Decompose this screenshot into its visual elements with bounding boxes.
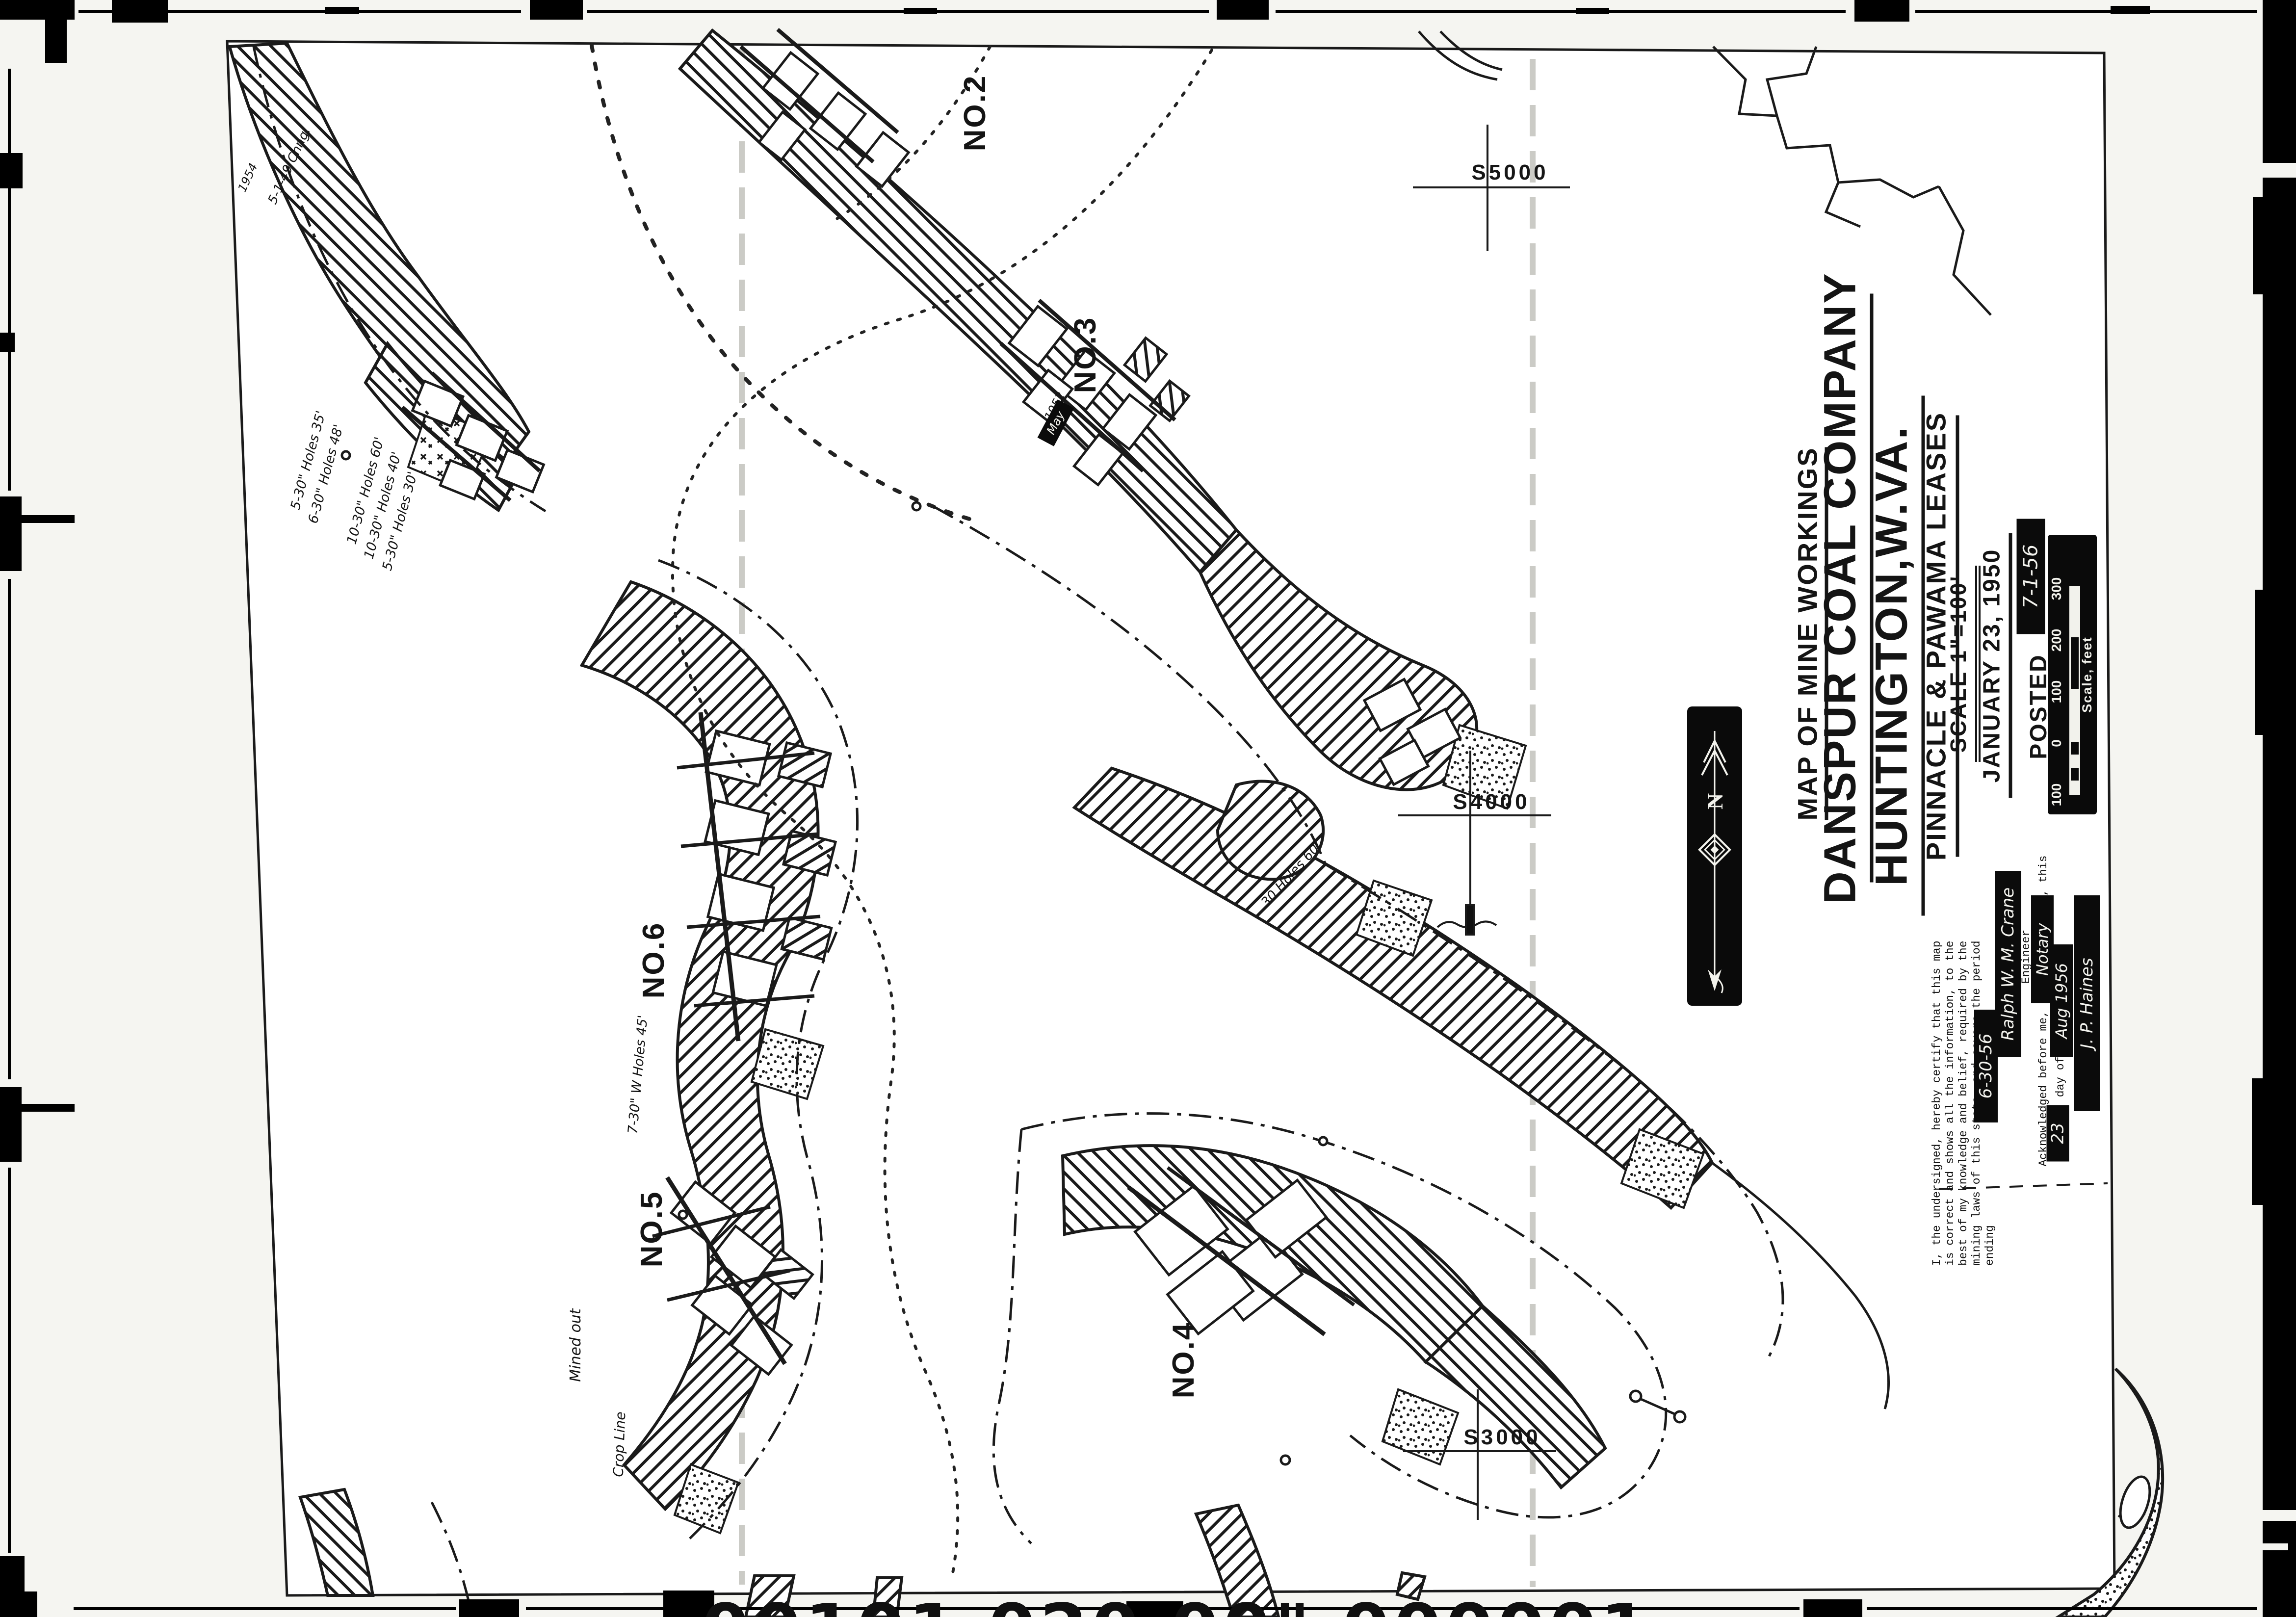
grid-label-s3000: S3000 xyxy=(1448,1427,1556,1448)
posted-date-handwritten: 7-1-56 xyxy=(2017,519,2045,634)
cert-line-1: I, the undersigned, hereby certify that … xyxy=(1931,873,1944,1266)
location-title: HUNTINGTON,W.VA. xyxy=(1865,396,1925,916)
label-no3: NO.3 xyxy=(1070,303,1100,406)
label-no5: NO.5 xyxy=(637,1177,666,1280)
annotation-mined-out: Mined out xyxy=(568,1281,583,1409)
ack-month-year-handwritten: Aug 1956 xyxy=(2050,944,2073,1057)
scale-tick-100L: 100 xyxy=(2049,780,2064,809)
scale-bar-caption: Scale, feet xyxy=(2080,535,2095,814)
film-digits: 00101 020 00" 000001 xyxy=(702,1590,1879,1617)
cert-line-2: is correct and shows all the information… xyxy=(1944,873,1957,1266)
ack-this: , this xyxy=(2036,849,2051,903)
scanned-mine-map: MAP OF MINE WORKINGS DANSPUR COAL COMPAN… xyxy=(0,0,2296,1617)
grid-label-s4000: S4000 xyxy=(1437,791,1545,813)
north-arrow-drawing: N xyxy=(1687,706,1742,1006)
north-arrow-block: N xyxy=(1687,706,1742,1006)
north-letter: N xyxy=(1702,793,1727,809)
ending-date-handwritten: 6-30-56 xyxy=(1974,1010,1998,1122)
scale-bar: 100 0 100 200 300 Scale, feet xyxy=(2048,535,2097,814)
grid-label-s5000: S5000 xyxy=(1456,162,1564,183)
date-label: JANUARY 23, 1950 xyxy=(1978,533,2012,798)
scale-tick-300: 300 xyxy=(2049,574,2064,603)
scale-bar-ruler xyxy=(2069,586,2080,795)
engineer-signature: Ralph W. M. Crane xyxy=(1995,871,2021,1057)
label-no4: NO.4 xyxy=(1169,1308,1198,1411)
notary-signature: J. P. Haines xyxy=(2074,895,2100,1111)
scale-tick-100R: 100 xyxy=(2049,677,2064,706)
ack-day-handwritten: 23 xyxy=(2047,1105,2069,1162)
label-no2: NO.2 xyxy=(960,64,990,162)
scale-tick-200: 200 xyxy=(2049,626,2064,655)
cert-line-3: best of my knowledge and belief, require… xyxy=(1957,873,1970,1266)
scale-tick-0: 0 xyxy=(2049,729,2064,758)
scale-label: SCALE 1"=100' xyxy=(1944,566,1981,762)
